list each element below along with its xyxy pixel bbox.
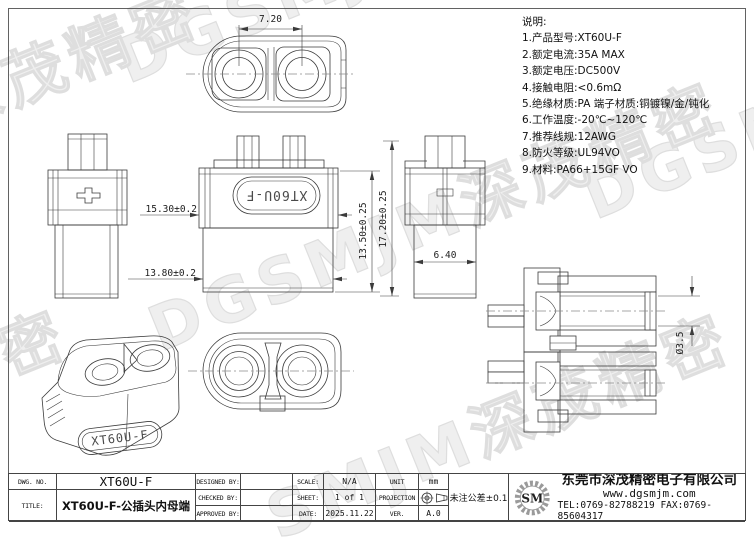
side-view-right: 6.40 (405, 136, 485, 298)
title-label: TITLE: (9, 490, 57, 522)
note-item: 2.额定电流:35A MAX (522, 47, 754, 63)
dwg-no-value: XT60U-F (57, 474, 196, 490)
title-block: DWG. NO. TITLE: XT60U-F XT60U-F-公插头内母端 D… (8, 473, 746, 521)
scale-value: N/A (324, 474, 376, 490)
dim-upper-width: 15.30±0.2 (146, 204, 197, 215)
approved-by-label: APPROVED BY: (196, 506, 241, 522)
gear-logo-icon: SM (513, 477, 552, 519)
part-label-iso: XT60U-F (91, 428, 150, 449)
sheet-value: 1 of 1 (324, 490, 376, 506)
notes-block: 说明: 1.产品型号:XT60U-F 2.额定电流:35A MAX 3.额定电压… (522, 14, 754, 178)
note-item: 1.产品型号:XT60U-F (522, 30, 754, 46)
drawing-sheet: { "watermark": { "full": "DGSMJM深茂精密", "… (0, 0, 754, 533)
notes-title: 说明: (522, 14, 754, 30)
projection-label: PROJECTION (376, 490, 419, 506)
iso-view: XT60U-F (42, 336, 179, 456)
part-label-front: XT60U-F (246, 187, 308, 202)
bottom-view (188, 333, 354, 411)
date-label: DATE: (293, 506, 324, 522)
note-item: 7.推荐线规:12AWG (522, 129, 754, 145)
dim-body-height: 13.50±0.25 (358, 202, 369, 259)
dim-pitch: 7.20 (259, 14, 282, 25)
scale-label: SCALE: (293, 474, 324, 490)
designed-by-value (241, 474, 293, 490)
ver-value: A.0 (419, 506, 449, 522)
front-view: XT60U-F 15.30±0.2 13.80±0.2 13.50±0.25 1… (128, 136, 399, 296)
title-value: XT60U-F-公插头内母端 (57, 490, 196, 522)
note-item: 5.绝缘材质:PA 端子材质:铜镀镍/金/钝化 (522, 96, 754, 112)
company-name: 东莞市深茂精密电子有限公司 (562, 474, 738, 488)
note-item: 8.防火等级:UL94VO (522, 145, 754, 161)
note-item: 9.材料:PA66+15GF VO (522, 162, 754, 178)
checked-by-value (241, 490, 293, 506)
note-item: 6.工作温度:-20℃~120℃ (522, 112, 754, 128)
first-angle-projection-icon (420, 491, 448, 505)
top-view: 7.20 (186, 14, 356, 112)
dim-lower-width: 13.80±0.2 (145, 268, 196, 279)
designed-by-label: DESIGNED BY: (196, 474, 241, 490)
dim-side-width: 6.40 (434, 250, 457, 261)
company-website: www.dgsmjm.com (603, 488, 696, 501)
unit-value: mm (419, 474, 449, 490)
side-view-left (48, 134, 127, 298)
dim-total-height: 17.20±0.25 (378, 190, 389, 247)
dim-bore-dia: Ø3.5 (675, 332, 686, 355)
checked-by-label: CHECKED BY: (196, 490, 241, 506)
dwg-no-label: DWG. NO. (9, 474, 57, 490)
ver-label: VER. (376, 506, 419, 522)
section-view: Ø3.5 (486, 268, 700, 432)
date-value: 2025.11.22 (324, 506, 376, 522)
projection-symbol (419, 490, 449, 506)
company-cell: SM 东莞市深茂精密电子有限公司 www.dgsmjm.com TEL:0769… (509, 474, 745, 522)
unit-label: UNIT (376, 474, 419, 490)
tolerance-note: 未注公差±0.1 (449, 474, 509, 522)
company-contact: TEL:0769-82788219 FAX:0769-85604317 (558, 501, 742, 522)
approved-by-value (241, 506, 293, 522)
note-item: 3.额定电压:DC500V (522, 63, 754, 79)
note-item: 4.接触电阻:<0.6mΩ (522, 80, 754, 96)
logo-text: SM (521, 491, 543, 505)
sheet-label: SHEET: (293, 490, 324, 506)
